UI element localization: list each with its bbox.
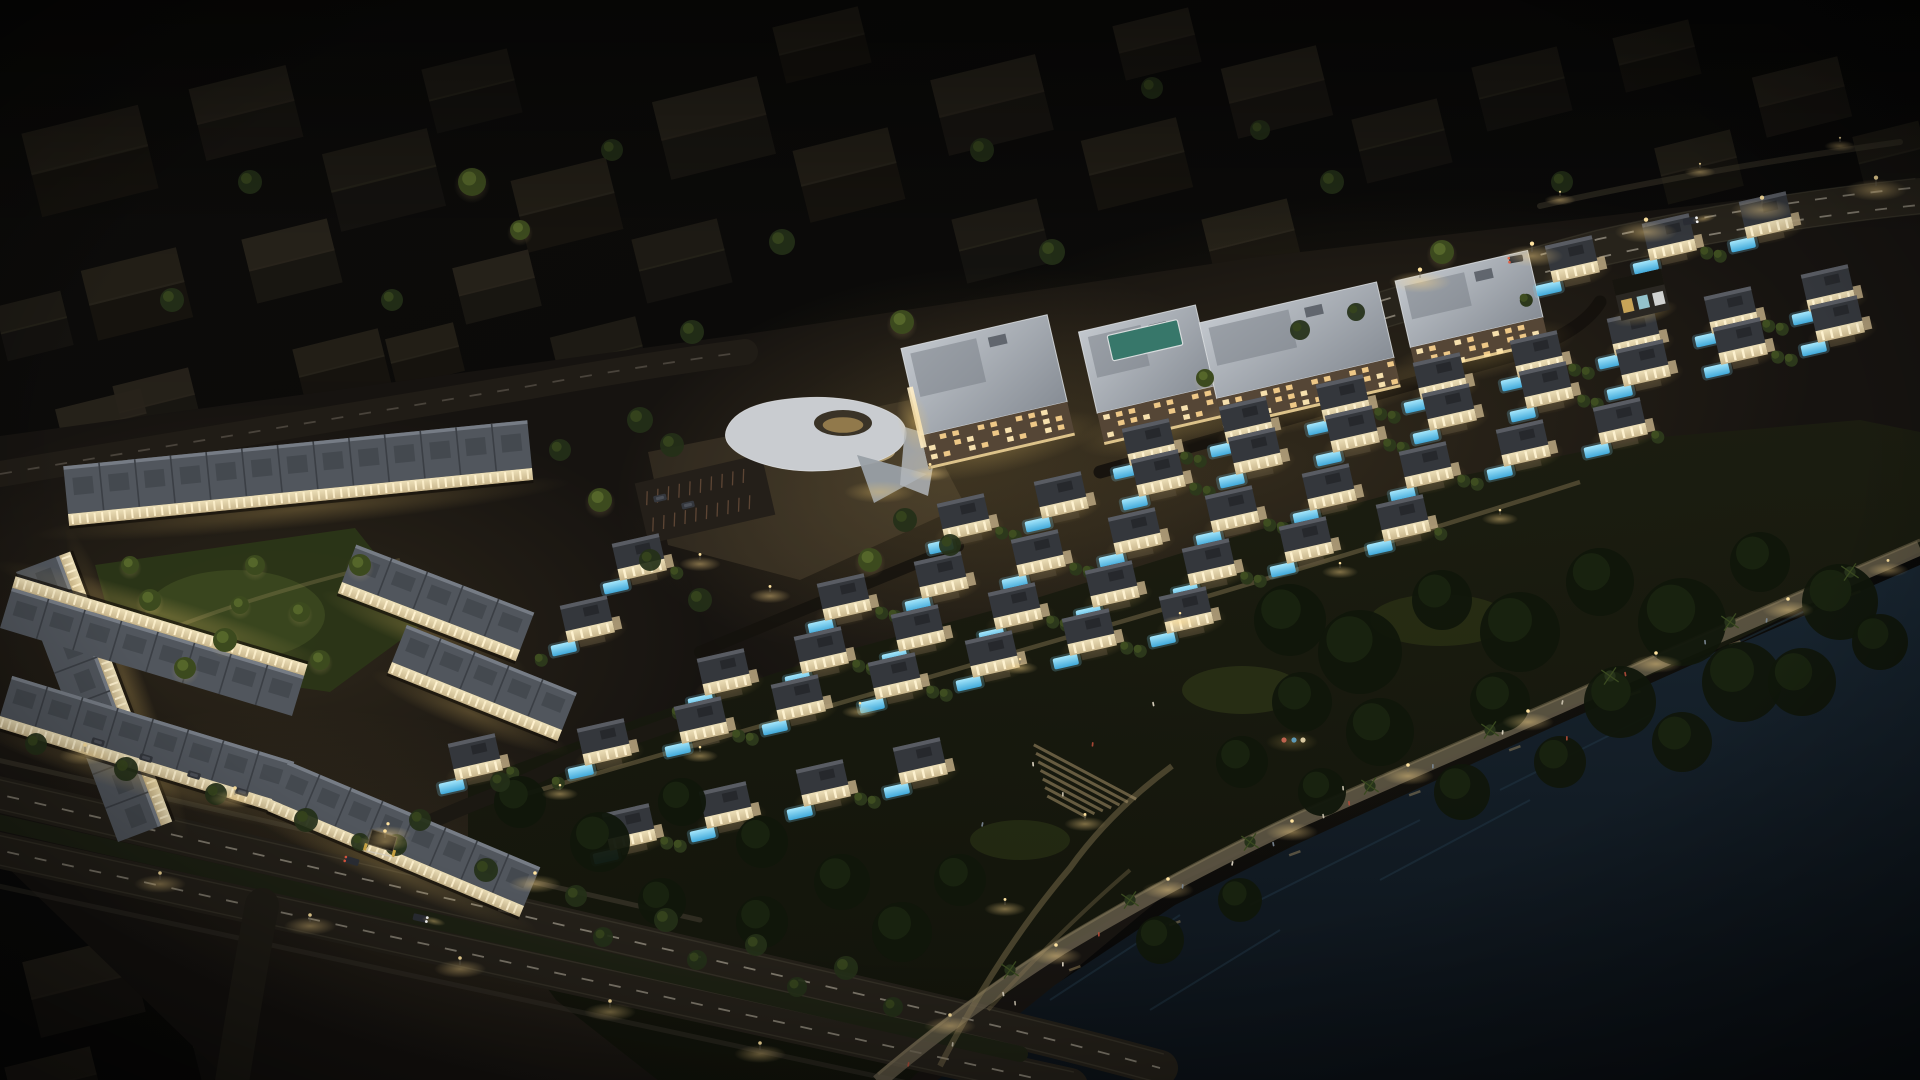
masterplan-night-render — [0, 0, 1920, 1080]
vignette-layer — [0, 0, 1920, 1080]
architectural-render — [0, 0, 1920, 1080]
vignette — [0, 0, 1920, 1080]
